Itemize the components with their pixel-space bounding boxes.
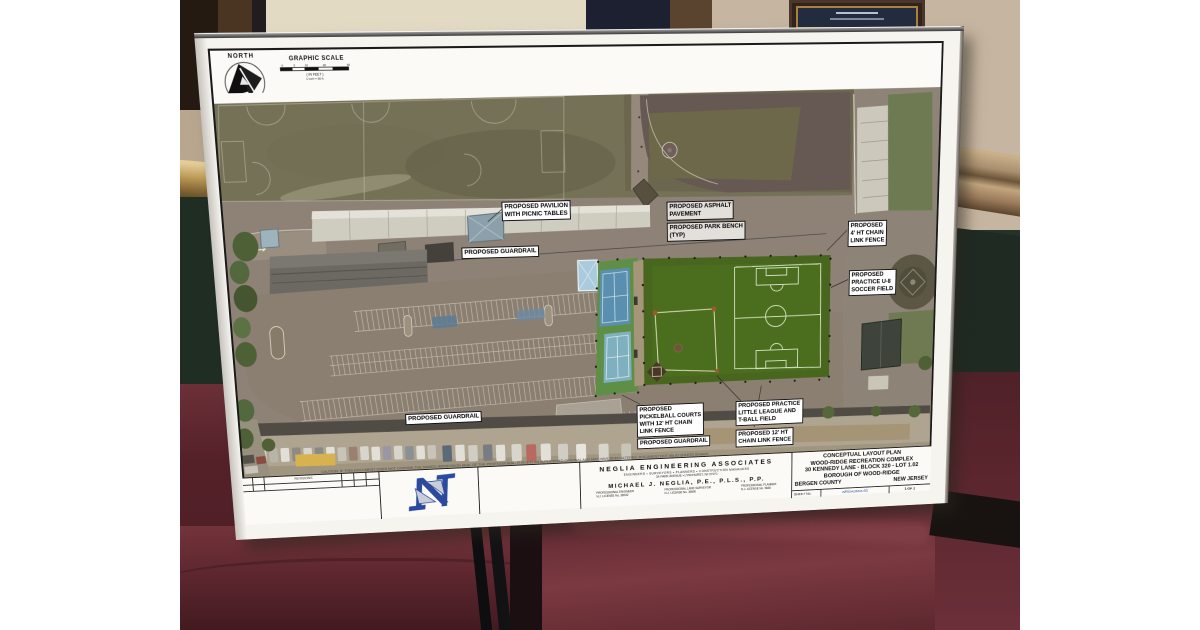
svg-text:10: 10 <box>305 63 309 67</box>
svg-text:1 inch = 50 ft.: 1 inch = 50 ft. <box>306 77 324 81</box>
svg-text:20: 20 <box>323 63 327 67</box>
svg-text:5: 5 <box>293 64 295 68</box>
svg-text:0: 0 <box>281 64 283 68</box>
svg-text:40: 40 <box>347 63 351 67</box>
